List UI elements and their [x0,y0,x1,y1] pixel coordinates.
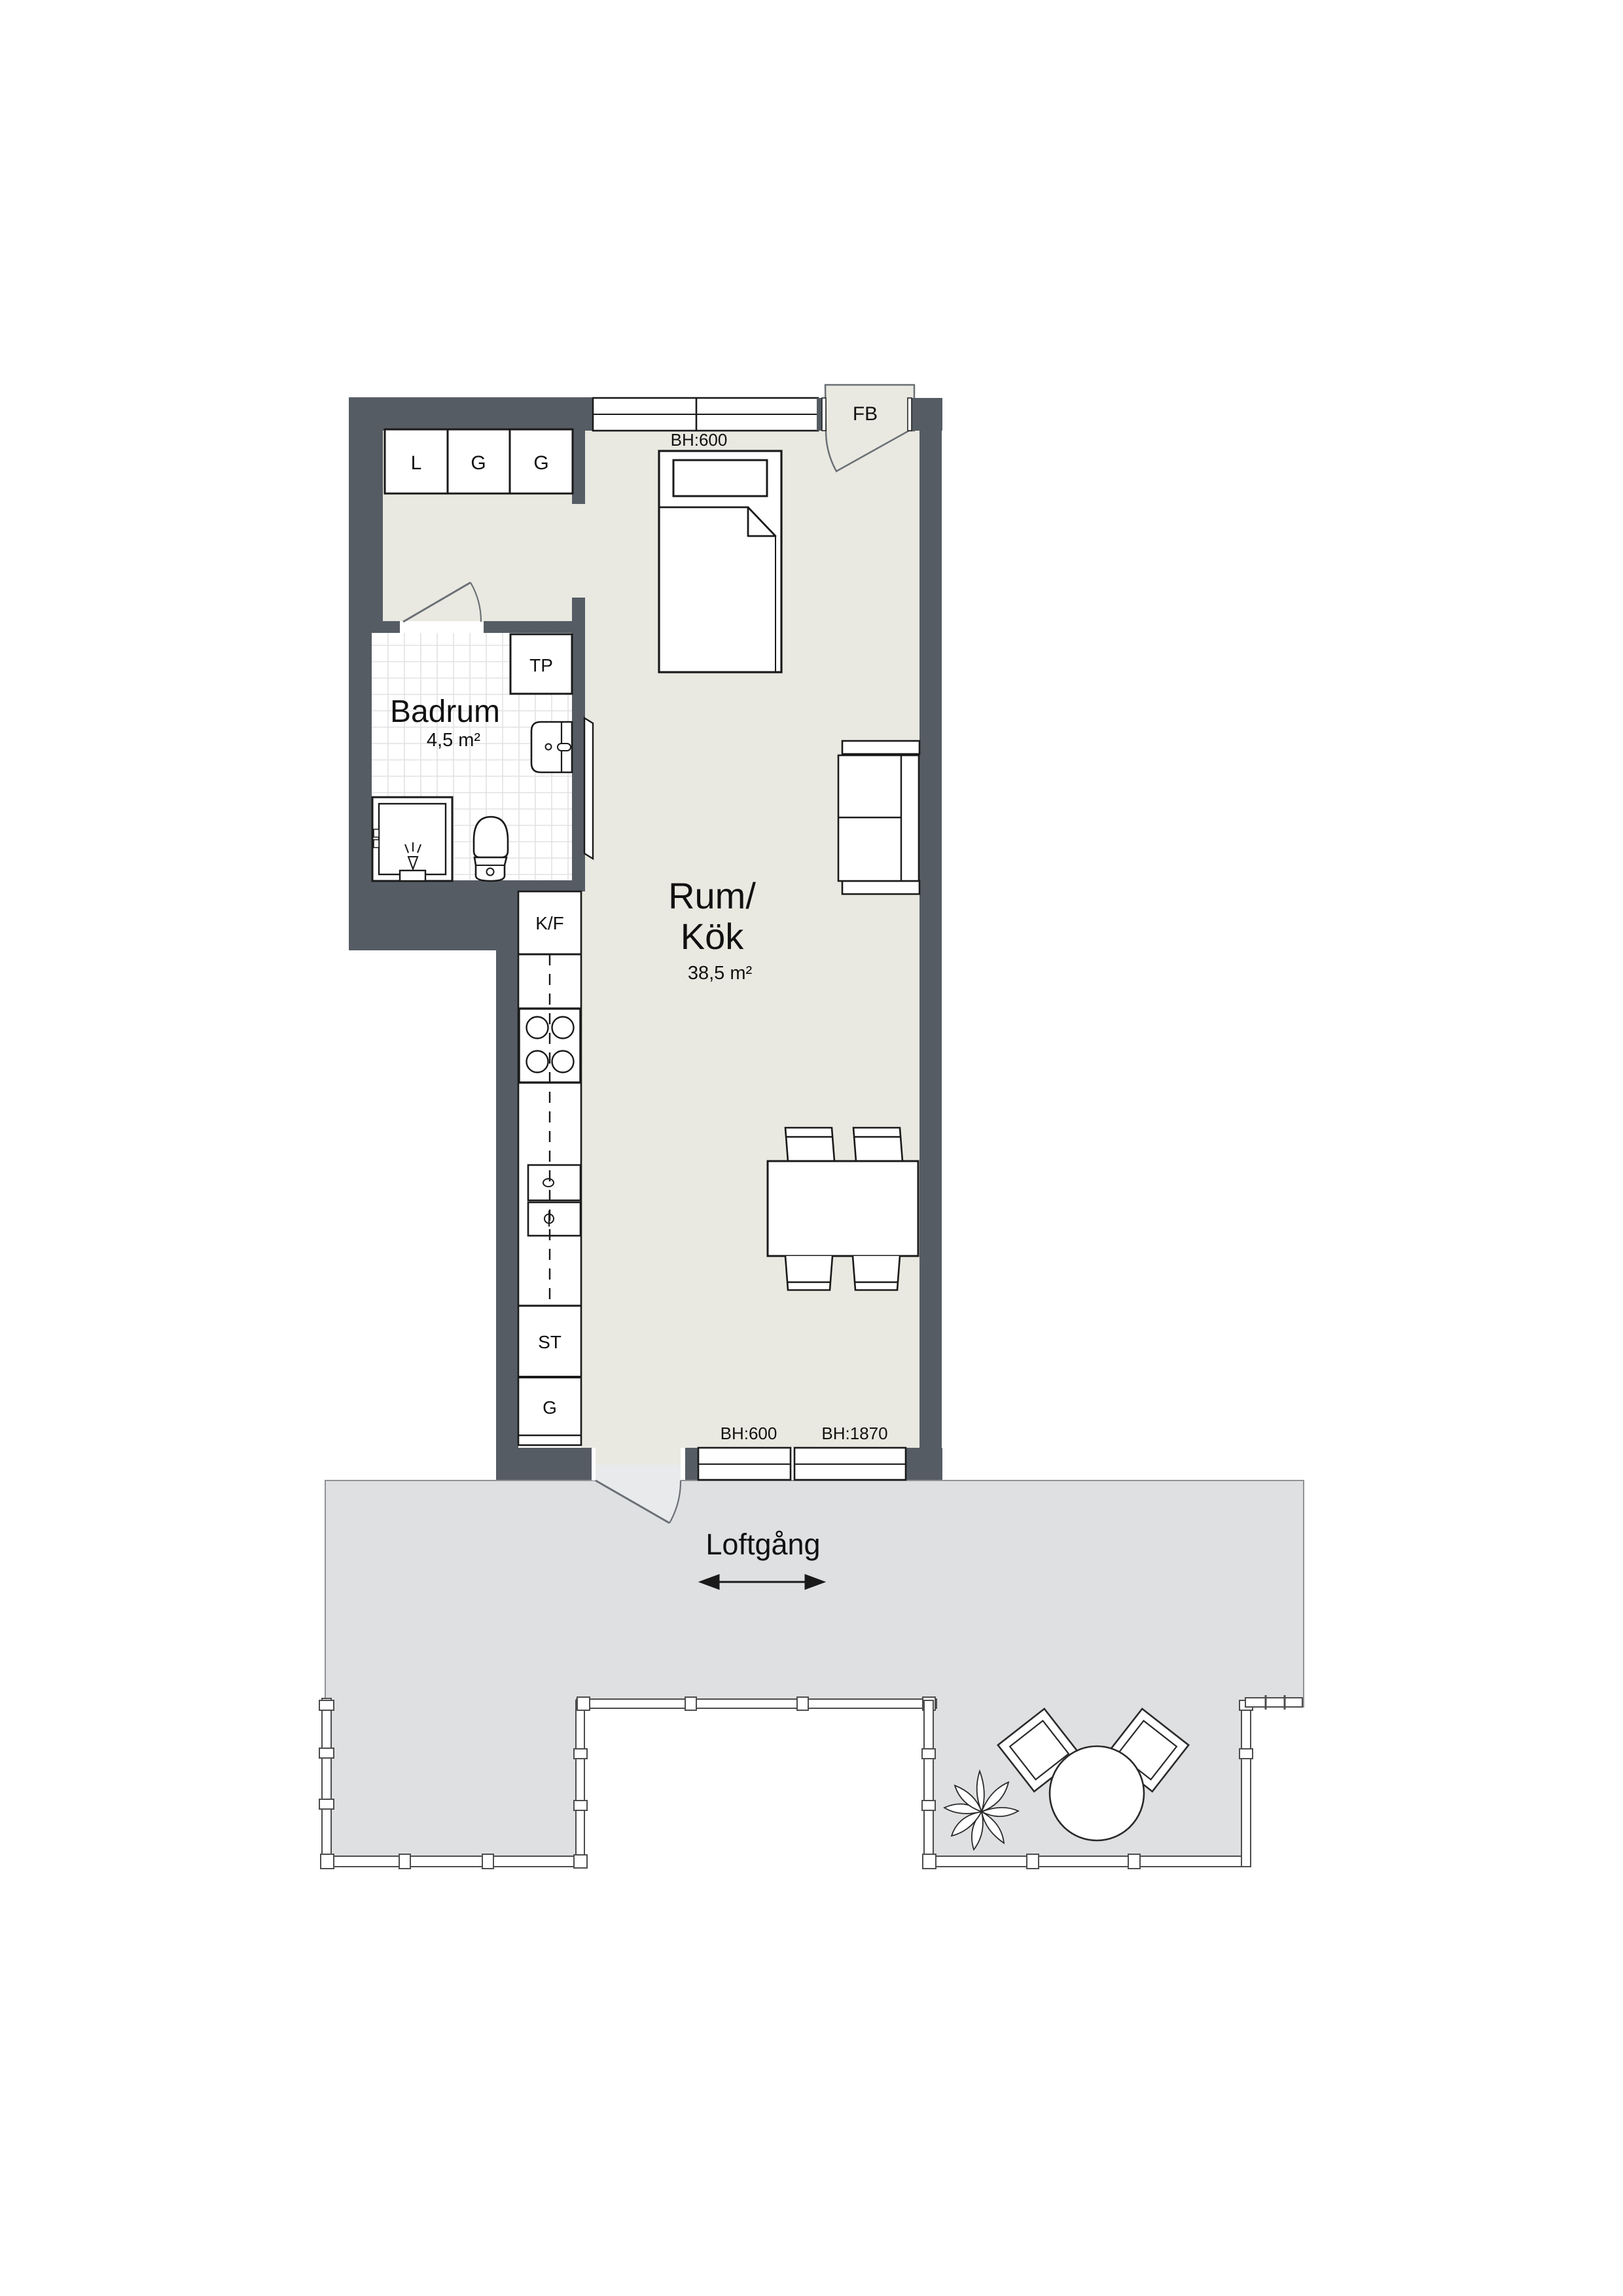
svg-text:G: G [471,452,486,474]
svg-text:Badrum: Badrum [390,694,500,729]
svg-text:L: L [411,452,422,474]
svg-text:TP: TP [529,655,553,675]
svg-text:BH:600: BH:600 [721,1424,777,1443]
svg-text:FB: FB [853,403,878,425]
svg-text:K/F: K/F [535,913,564,933]
svg-text:Kök: Kök [681,916,744,957]
svg-text:BH:600: BH:600 [671,430,728,450]
svg-text:Rum/: Rum/ [668,875,756,916]
svg-text:Loftgång: Loftgång [705,1528,820,1561]
svg-text:4,5 m²: 4,5 m² [427,730,481,751]
svg-text:G: G [533,452,548,474]
svg-text:ST: ST [538,1332,562,1352]
svg-text:38,5 m²: 38,5 m² [688,963,753,984]
svg-text:BH:1870: BH:1870 [821,1424,887,1443]
svg-text:G: G [543,1397,557,1418]
